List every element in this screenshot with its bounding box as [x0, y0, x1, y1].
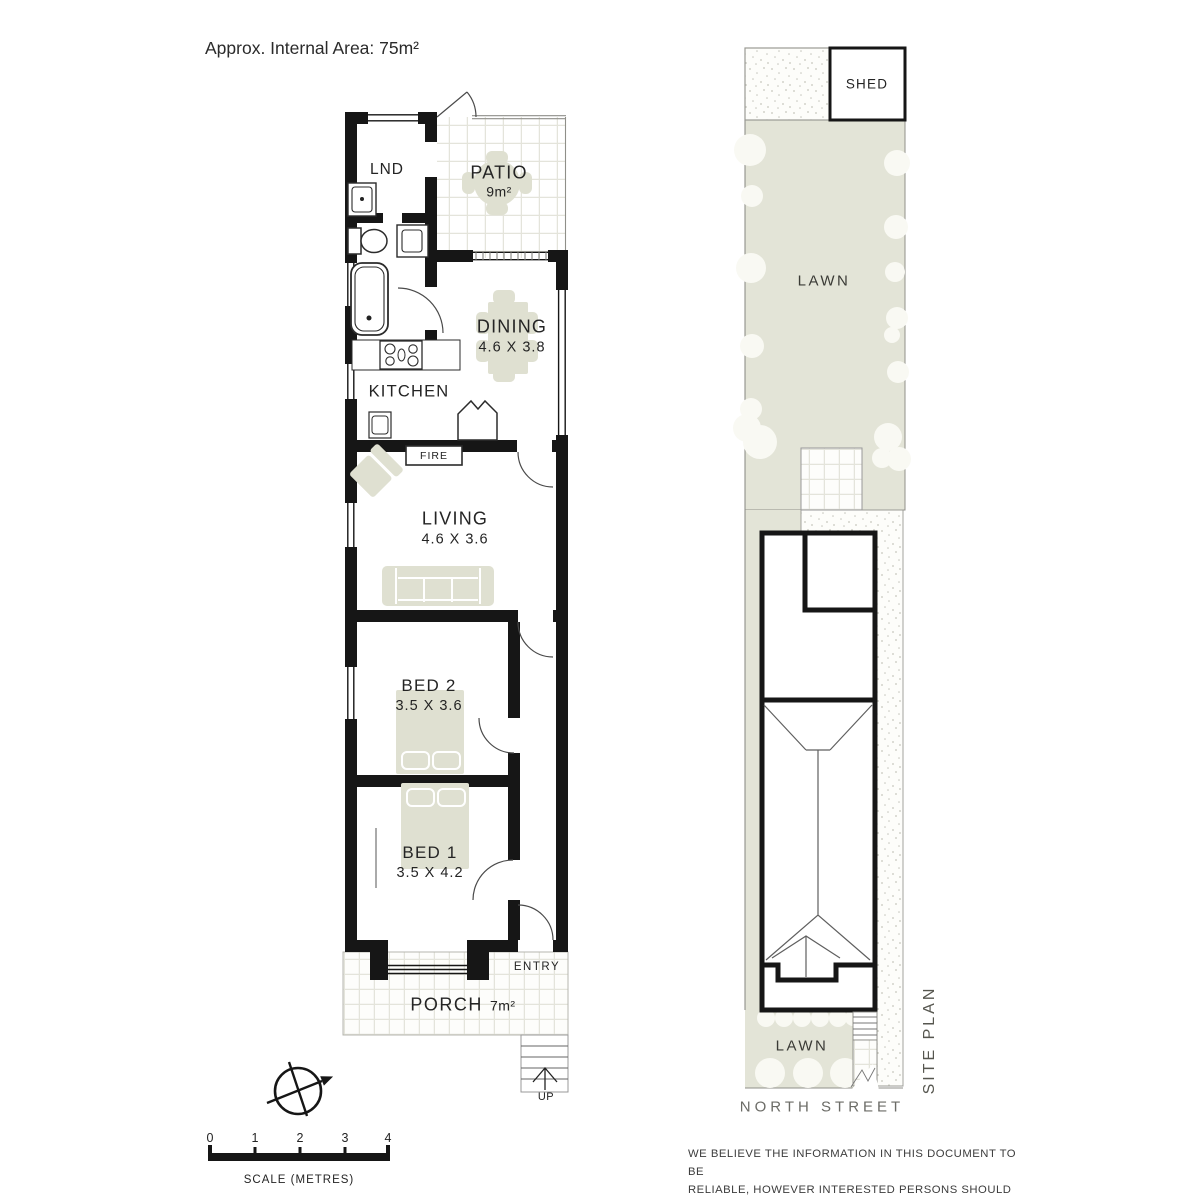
room-label-living: LIVING 4.6 X 3.6 — [421, 509, 488, 548]
patio-name: PATIO — [470, 163, 527, 184]
disclaimer: WE BELIEVE THE INFORMATION IN THIS DOCUM… — [688, 1146, 1018, 1200]
dining-dims: 4.6 X 3.8 — [477, 340, 547, 356]
scale-caption: SCALE (METRES) — [244, 1174, 355, 1186]
scale-tick-1: 1 — [252, 1131, 259, 1145]
room-label-kitchen: KITCHEN — [369, 383, 450, 402]
chimney-bay — [458, 401, 497, 440]
scale-tick-4: 4 — [385, 1131, 392, 1145]
bed2-dims: 3.5 X 3.6 — [395, 698, 462, 714]
dining-name: DINING — [477, 317, 547, 338]
bed1-dims: 3.5 X 4.2 — [396, 865, 463, 881]
site-plan — [733, 48, 911, 1090]
scale-tick-3: 3 — [342, 1131, 349, 1145]
living-name: LIVING — [421, 509, 488, 530]
page-title: Approx. Internal Area: 75m² — [205, 38, 419, 59]
shed-label: SHED — [846, 77, 888, 92]
kitchen-sink — [369, 412, 391, 438]
sofa — [382, 566, 494, 606]
disclaimer-line-1: WE BELIEVE THE INFORMATION IN THIS DOCUM… — [688, 1146, 1018, 1182]
disclaimer-line-2: RELIABLE, HOWEVER INTERESTED PERSONS SHO… — [688, 1182, 1018, 1200]
back-paving — [745, 48, 830, 120]
room-label-patio: PATIO 9m² — [470, 163, 527, 200]
toilet — [348, 228, 387, 254]
site-plan-caption: SITE PLAN — [921, 986, 939, 1095]
room-label-porch: PORCH 7m² — [410, 995, 515, 1016]
room-label-bed2: BED 2 3.5 X 3.6 — [395, 676, 462, 714]
room-label-bed1: BED 1 3.5 X 4.2 — [396, 843, 463, 881]
stairs-up-label: UP — [538, 1091, 554, 1103]
house-outline — [762, 533, 875, 1010]
plan-graphics — [0, 0, 1200, 1200]
scale-bar — [208, 1145, 390, 1161]
room-label-dining: DINING 4.6 X 3.8 — [477, 317, 547, 356]
laundry-sink — [348, 183, 376, 216]
front-steps — [851, 1012, 879, 1090]
back-lawn-label: LAWN — [798, 273, 851, 290]
floor-plan — [343, 92, 568, 1092]
floorplan-page: Approx. Internal Area: 75m² LND PATIO 9m… — [0, 0, 1200, 1200]
porch-name: PORCH — [410, 995, 483, 1016]
porch-area: 7m² — [490, 998, 516, 1014]
compass-icon — [267, 1062, 333, 1116]
rear-patio-tiles — [801, 448, 862, 510]
street-label: NORTH STREET — [740, 1099, 904, 1116]
bed1-name: BED 1 — [396, 843, 463, 863]
bed2-name: BED 2 — [395, 676, 462, 696]
scale-tick-0: 0 — [207, 1131, 214, 1145]
porch-stairs — [521, 1035, 568, 1092]
vanity — [397, 225, 428, 257]
scale-tick-2: 2 — [297, 1131, 304, 1145]
stove — [380, 341, 422, 369]
bathtub — [351, 263, 388, 335]
front-lawn-label: LAWN — [776, 1038, 829, 1055]
room-label-lnd: LND — [370, 161, 404, 179]
fireplace-label: FIRE — [420, 450, 448, 462]
living-dims: 4.6 X 3.6 — [421, 532, 488, 548]
entry-label: ENTRY — [514, 961, 560, 973]
patio-area: 9m² — [470, 184, 527, 200]
